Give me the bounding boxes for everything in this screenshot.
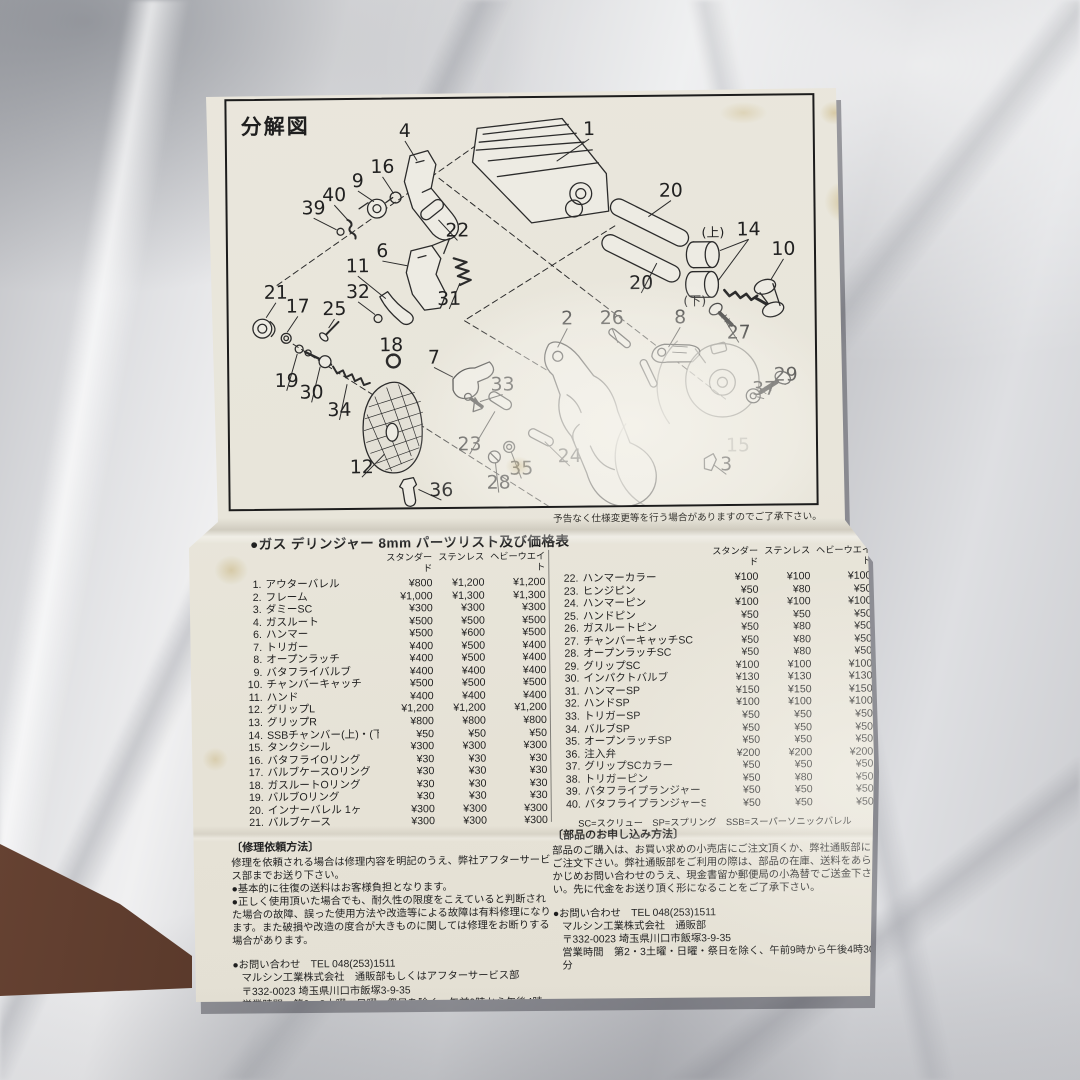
price-cell: ¥800 <box>377 577 432 590</box>
part-label: 14 <box>736 219 760 240</box>
price-cell: ¥130 <box>704 671 759 684</box>
repair-contact: ●お問い合わせ TEL 048(253)1511マルシン工業株式会社 通販部もし… <box>232 956 553 1025</box>
price-cell: ¥300 <box>486 739 547 752</box>
price-cell: ¥150 <box>760 683 812 696</box>
part-number: 35. <box>555 736 582 749</box>
price-cell: ¥80 <box>759 620 811 633</box>
price-cell: ¥200 <box>760 746 812 759</box>
part-number: 34. <box>555 723 582 736</box>
part-number: 4. <box>237 617 264 630</box>
repair-section: 〔修理依頼方法〕 修理を依頼される場合は修理内容を明記のうえ、弊社アフターサービ… <box>231 839 553 1025</box>
col-standard: スタンダード <box>703 546 758 569</box>
part-number: 32. <box>555 698 582 711</box>
price-cell: ¥1,200 <box>484 576 545 589</box>
price-cell: ¥50 <box>704 633 759 646</box>
part-number: 22. <box>553 573 580 586</box>
part-label: 27 <box>727 322 751 343</box>
part-label: 26 <box>600 308 624 329</box>
part-label: 20 <box>659 181 683 202</box>
part-label: (下) <box>683 294 706 309</box>
price-cell: ¥400 <box>378 640 433 653</box>
part-number: 21. <box>239 817 266 830</box>
paper-stain <box>202 747 228 771</box>
part-name: バタフライバルブ <box>264 666 378 680</box>
price-cell: ¥1,200 <box>486 701 547 714</box>
price-cell: ¥50 <box>812 733 873 746</box>
part-name: タンクシール <box>265 741 379 755</box>
price-cell: ¥400 <box>378 665 433 678</box>
part-label: 34 <box>327 400 351 421</box>
price-cell: ¥100 <box>812 695 873 708</box>
part-label: 37 <box>752 379 776 400</box>
price-cell: ¥300 <box>380 803 435 816</box>
price-cell: ¥500 <box>485 614 546 627</box>
price-cell: ¥80 <box>759 645 811 658</box>
text-line: ●正しく使用頂いた場合でも、耐久性の限度をこえていると判断された場合の故障、誤っ… <box>232 893 553 949</box>
price-cell: ¥500 <box>378 615 433 628</box>
part-name: ハンマー <box>264 628 378 642</box>
part-label: 16 <box>370 157 394 178</box>
price-table-right: スタンダード ステンレス ヘビーウエイト 22.ハンマーカラー¥100¥100¥… <box>553 545 874 831</box>
part-label: (上) <box>701 226 724 241</box>
price-cell: ¥100 <box>759 595 811 608</box>
part-name: バルブケース <box>266 816 380 830</box>
part-label: 10 <box>771 239 795 260</box>
price-cell: ¥1,200 <box>434 702 486 715</box>
rows-right: 22.ハンマーカラー¥100¥100¥10023.ヒンジピン¥50¥80¥502… <box>553 570 873 812</box>
part-name: チャンバーキャッチ <box>264 678 378 692</box>
table-row: 21.バルブケース¥300¥300¥300 <box>239 814 548 830</box>
part-name: バタフライOリング <box>265 753 379 767</box>
part-name: グリップR <box>265 716 379 730</box>
price-cell: ¥50 <box>434 727 486 740</box>
price-cell: ¥500 <box>378 627 433 640</box>
price-cell: ¥130 <box>759 671 811 684</box>
col-stainless: ステンレス <box>758 545 810 568</box>
part-number: 23. <box>553 585 580 598</box>
price-cell: ¥300 <box>485 601 546 614</box>
price-cell: ¥400 <box>433 664 485 677</box>
part-label: 3 <box>720 454 732 475</box>
part-number: 38. <box>555 773 582 786</box>
part-label: 12 <box>350 457 374 478</box>
col-heavyweight: ヘビーウエイト <box>484 551 545 574</box>
part-label: 33 <box>490 374 514 395</box>
part-name: ハンド <box>265 691 379 705</box>
part-number: 3. <box>237 604 264 617</box>
price-cell: ¥50 <box>760 721 812 734</box>
part-label: 30 <box>299 382 323 403</box>
price-cell: ¥300 <box>487 814 548 827</box>
part-label: 4 <box>399 121 411 142</box>
price-cell: ¥400 <box>485 639 546 652</box>
price-cell: ¥1,200 <box>379 703 434 716</box>
table-divider <box>548 550 552 822</box>
price-cell: ¥500 <box>485 676 546 689</box>
price-cell: ¥50 <box>760 708 812 721</box>
rows-left: 1.アウターバレル¥800¥1,200¥1,2002.フレーム¥1,000¥1,… <box>236 576 548 830</box>
part-number: 19. <box>239 792 266 805</box>
price-cell: ¥50 <box>812 758 873 771</box>
part-label: 28 <box>487 472 511 493</box>
price-cell: ¥30 <box>435 790 487 803</box>
price-cell: ¥80 <box>758 583 810 596</box>
price-cell: ¥50 <box>812 770 873 783</box>
price-cell: ¥1,300 <box>485 588 546 601</box>
col-stainless: ステンレス <box>432 552 484 575</box>
photo-scene: 1416940392220(上)14106113120(下)2722682117… <box>0 0 1080 1080</box>
price-cell: ¥50 <box>760 758 812 771</box>
price-cell: ¥50 <box>812 720 873 733</box>
price-cell: ¥500 <box>433 677 485 690</box>
part-label: 31 <box>437 289 461 310</box>
price-cell: ¥50 <box>704 621 759 634</box>
price-cell: ¥300 <box>380 816 435 829</box>
part-label: 25 <box>322 299 346 320</box>
price-cell: ¥30 <box>486 764 547 777</box>
part-label: 35 <box>509 458 533 479</box>
price-cell: ¥100 <box>760 696 812 709</box>
part-label: 6 <box>376 241 388 262</box>
price-cell: ¥300 <box>378 602 433 615</box>
price-cell: ¥400 <box>379 690 434 703</box>
part-number: 40. <box>556 798 583 811</box>
part-number: 26. <box>554 623 581 636</box>
part-name: フレーム <box>264 590 378 604</box>
part-label: 36 <box>429 480 453 501</box>
price-cell: ¥300 <box>434 740 486 753</box>
price-cell: ¥30 <box>486 777 547 790</box>
price-cell: ¥800 <box>379 715 434 728</box>
price-cell: ¥100 <box>758 570 810 583</box>
price-cell: ¥50 <box>704 608 759 621</box>
price-cell: ¥130 <box>811 670 872 683</box>
price-cell: ¥50 <box>705 759 760 772</box>
part-name: オープンラッチ <box>264 653 378 667</box>
price-cell: ¥400 <box>378 652 433 665</box>
price-cell: ¥80 <box>759 633 811 646</box>
part-number: 15. <box>238 742 265 755</box>
price-cell: ¥50 <box>761 796 813 809</box>
price-cell: ¥50 <box>706 784 761 797</box>
part-number: 28. <box>554 648 581 661</box>
price-cell: ¥30 <box>379 778 434 791</box>
price-cell: ¥1,200 <box>432 577 484 590</box>
part-name: アウターバレル <box>263 578 377 592</box>
part-number: 7. <box>237 642 264 655</box>
price-cell: ¥50 <box>811 607 872 620</box>
price-cell: ¥150 <box>705 684 760 697</box>
part-name: ガスルートOリング <box>265 778 379 792</box>
price-cell: ¥400 <box>434 690 486 703</box>
price-cell: ¥30 <box>486 752 547 765</box>
price-cell: ¥50 <box>813 783 874 796</box>
part-name: バルブケースOリング <box>265 766 379 780</box>
part-number: 31. <box>555 685 582 698</box>
exploded-diagram: 1416940392220(上)14106113120(下)2722682117… <box>226 95 816 509</box>
price-cell: ¥1,300 <box>433 589 485 602</box>
price-cell: ¥100 <box>759 658 811 671</box>
order-section: 〔部品のお申し込み方法〕 部品のご購入は、お買い求めの小売店にご注文頂くか、弊社… <box>552 826 877 973</box>
price-cell: ¥50 <box>761 783 813 796</box>
price-cell: ¥50 <box>811 620 872 633</box>
part-number: 1. <box>236 579 263 592</box>
part-label: 8 <box>674 307 686 328</box>
price-cell: ¥50 <box>704 646 759 659</box>
price-cell: ¥150 <box>812 682 873 695</box>
part-label: 11 <box>346 256 370 277</box>
part-number: 8. <box>237 654 264 667</box>
price-cell: ¥50 <box>486 726 547 739</box>
part-number: 10. <box>237 679 264 692</box>
price-cell: ¥30 <box>434 765 486 778</box>
part-name: ダミーSC <box>264 603 378 617</box>
price-cell: ¥1,000 <box>378 590 433 603</box>
part-label: 24 <box>558 446 582 467</box>
price-cell: ¥50 <box>760 733 812 746</box>
part-label: 40 <box>322 185 346 206</box>
diagram-title: 分解図 <box>240 110 309 141</box>
price-cell: ¥50 <box>706 797 761 810</box>
price-cell: ¥100 <box>705 696 760 709</box>
part-label: 23 <box>457 434 481 455</box>
price-cell: ¥500 <box>433 614 485 627</box>
order-body: 部品のご購入は、お買い求めの小売店にご注文頂くか、弊社通販部にご注文下さい。弊社… <box>552 841 877 897</box>
part-number: 27. <box>554 635 581 648</box>
repair-body: 修理を依頼される場合は修理内容を明記のうえ、弊社アフターサービス部までお送り下さ… <box>231 854 552 949</box>
part-name: バルブOリング <box>266 791 380 805</box>
part-number: 6. <box>237 629 264 642</box>
part-number: 16. <box>238 755 265 768</box>
part-label: 39 <box>301 198 325 219</box>
part-number: 30. <box>554 673 581 686</box>
part-label: 1 <box>583 119 595 140</box>
price-cell: ¥30 <box>487 789 548 802</box>
price-cell: ¥50 <box>705 709 760 722</box>
paper: 1416940392220(上)14106113120(下)2722682117… <box>0 0 1080 1080</box>
price-cell: ¥500 <box>433 639 485 652</box>
price-cell: ¥300 <box>433 602 485 615</box>
part-label: 9 <box>352 171 364 192</box>
price-cell: ¥400 <box>485 651 546 664</box>
price-cell: ¥50 <box>811 645 872 658</box>
price-cell: ¥800 <box>486 714 547 727</box>
paper-stain <box>824 181 864 223</box>
spec-change-note: 予告なく仕様変更等を行う場合がありますのでご了承下さい。 <box>470 508 822 526</box>
part-number: 39. <box>556 786 583 799</box>
price-cell: ¥200 <box>705 746 760 759</box>
price-cell: ¥80 <box>760 771 812 784</box>
part-number: 36. <box>555 748 582 761</box>
price-cell: ¥300 <box>435 815 487 828</box>
price-cell: ¥600 <box>433 627 485 640</box>
part-number: 14. <box>238 729 265 742</box>
part-number: 24. <box>554 598 581 611</box>
part-label: 2 <box>561 308 573 329</box>
price-cell: ¥50 <box>759 608 811 621</box>
price-cell: ¥30 <box>379 765 434 778</box>
part-number: 20. <box>239 805 266 818</box>
price-cell: ¥50 <box>813 795 874 808</box>
col-heavyweight: ヘビーウエイト <box>810 545 871 568</box>
price-cell: ¥100 <box>811 595 872 608</box>
price-cell: ¥30 <box>380 790 435 803</box>
part-number: 18. <box>238 780 265 793</box>
price-cell: ¥30 <box>379 753 434 766</box>
price-cell: ¥200 <box>812 745 873 758</box>
price-cell: ¥500 <box>378 677 433 690</box>
price-cell: ¥100 <box>810 570 871 583</box>
price-cell: ¥50 <box>705 734 760 747</box>
price-cell: ¥100 <box>704 659 759 672</box>
price-table-left: スタンダード ステンレス ヘビーウエイト 1.アウターバレル¥800¥1,200… <box>236 551 548 830</box>
text-line: 部品のご購入は、お買い求めの小売店にご注文頂くか、弊社通販部にご注文下さい。弊社… <box>552 841 877 897</box>
part-name: バタフライプランジャーSP <box>583 797 706 811</box>
part-number: 11. <box>238 692 265 705</box>
price-cell: ¥800 <box>434 715 486 728</box>
part-number: 9. <box>237 667 264 680</box>
diagram-frame: 1416940392220(上)14106113120(下)2722682117… <box>224 93 818 511</box>
price-cell: ¥100 <box>704 596 759 609</box>
part-label: 18 <box>379 335 403 356</box>
part-number: 29. <box>554 660 581 673</box>
price-cell: ¥300 <box>435 802 487 815</box>
part-number: 2. <box>237 591 264 604</box>
price-cell: ¥400 <box>486 689 547 702</box>
part-name: ガスルート <box>264 615 378 629</box>
part-label: 19 <box>275 371 299 392</box>
col-standard: スタンダード <box>377 552 432 575</box>
part-name: SSBチャンバー(上)・(下)各 <box>265 728 379 742</box>
part-number: 17. <box>238 767 265 780</box>
part-label: 32 <box>346 282 370 303</box>
price-table-title: ●ガス デリンジャー 8mm パーツリスト及び価格表 <box>250 530 570 553</box>
text-line: 営業時間 第2・3土曜・日曜・祭日を除く、午前9時から午後4時30分 <box>553 944 877 974</box>
price-cell: ¥300 <box>487 802 548 815</box>
price-cell: ¥50 <box>812 708 873 721</box>
paper-stain <box>819 101 849 125</box>
part-label: 22 <box>445 220 469 241</box>
price-cell: ¥300 <box>379 740 434 753</box>
part-number: 13. <box>238 717 265 730</box>
part-name: トリガー <box>264 640 378 654</box>
column-headers: スタンダード ステンレス ヘビーウエイト <box>236 551 545 576</box>
table-row: 40.バタフライプランジャーSP¥50¥50¥50 <box>556 795 874 811</box>
part-number: 33. <box>555 711 582 724</box>
price-cell: ¥500 <box>433 652 485 665</box>
price-cell: ¥100 <box>703 571 758 584</box>
price-cell: ¥30 <box>434 752 486 765</box>
part-number: 12. <box>238 704 265 717</box>
part-label: 21 <box>264 283 288 304</box>
part-label: 17 <box>286 296 310 317</box>
price-cell: ¥50 <box>703 583 758 596</box>
part-name: グリップL <box>265 703 379 717</box>
price-cell: ¥500 <box>485 626 546 639</box>
price-cell: ¥50 <box>379 728 434 741</box>
price-cell: ¥100 <box>811 657 872 670</box>
part-number: 37. <box>555 761 582 774</box>
price-cell: ¥50 <box>811 632 872 645</box>
price-cell: ¥400 <box>485 664 546 677</box>
price-cell: ¥30 <box>434 777 486 790</box>
order-contact: ●お問い合わせ TEL 048(253)1511マルシン工業株式会社 通販部〒3… <box>553 905 878 974</box>
part-label: 29 <box>774 364 798 385</box>
part-label: 15 <box>726 435 750 456</box>
price-cell: ¥50 <box>705 721 760 734</box>
price-cell: ¥50 <box>705 771 760 784</box>
text-line: 修理を依頼される場合は修理内容を明記のうえ、弊社アフターサービス部までお送り下さ… <box>231 854 551 883</box>
part-label: 7 <box>428 347 440 368</box>
part-label: 20 <box>629 273 653 294</box>
price-cell: ¥50 <box>810 582 871 595</box>
column-headers: スタンダード ステンレス ヘビーウエイト <box>553 545 871 570</box>
part-number: 25. <box>554 610 581 623</box>
part-name: インナーバレル 1ヶ <box>266 804 380 818</box>
